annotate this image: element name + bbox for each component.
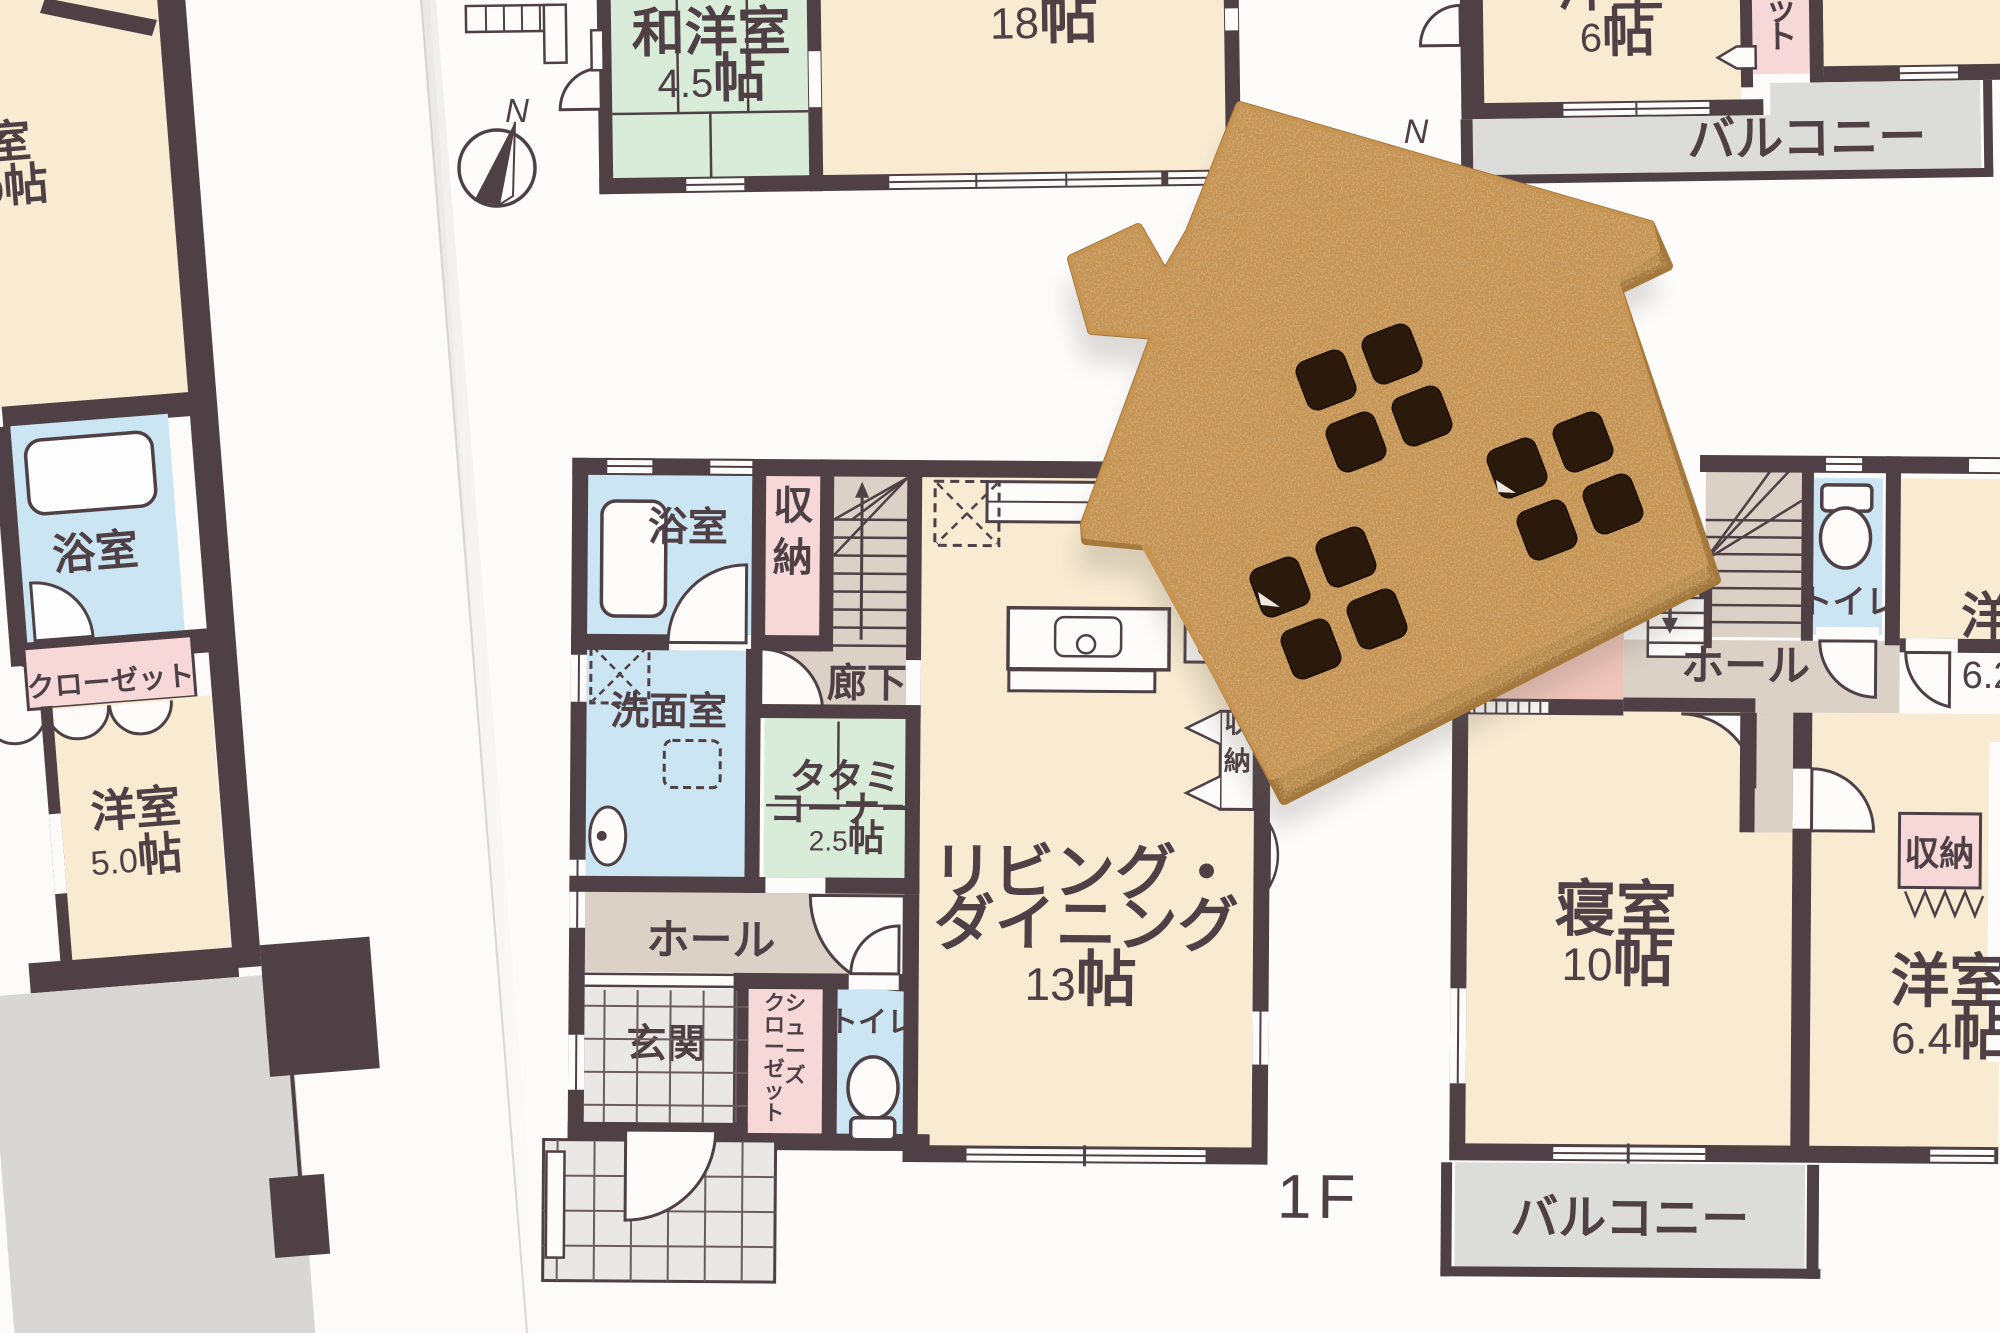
svg-text:ト: ト [1765, 19, 1798, 55]
svg-text:ズ: ズ [784, 1063, 805, 1087]
svg-text:和洋室: 和洋室 [631, 3, 791, 64]
svg-text:ッ: ッ [763, 1080, 784, 1103]
svg-text:シ: シ [785, 992, 806, 1015]
svg-text:ホール: ホール [646, 916, 775, 965]
svg-text:バルコニー: バルコニー [1510, 1192, 1749, 1247]
svg-text:ク: ク [764, 992, 785, 1015]
svg-text:トイレ: トイレ [829, 1007, 916, 1040]
svg-text:ゼ: ゼ [764, 1057, 785, 1081]
svg-text:5.0帖: 5.0帖 [0, 158, 50, 216]
svg-text:ロ: ロ [764, 1014, 785, 1037]
svg-text:廊下: 廊下 [827, 661, 907, 706]
svg-text:洗面室: 洗面室 [610, 690, 727, 734]
svg-text:ホール: ホール [1681, 642, 1810, 691]
svg-text:収納: 収納 [1904, 834, 1974, 873]
svg-text:トイレ: トイレ [1799, 583, 1898, 621]
svg-text:バルコニー: バルコニー [1687, 111, 1927, 167]
svg-text:ー: ー [785, 1040, 806, 1063]
svg-text:N: N [505, 92, 529, 129]
svg-text:収: 収 [773, 484, 813, 528]
svg-text:1F: 1F [1277, 1163, 1362, 1233]
svg-text:N: N [1404, 113, 1429, 151]
svg-text:洋室: 洋室 [1961, 588, 2000, 646]
svg-text:納: 納 [773, 536, 813, 580]
svg-text:浴室: 浴室 [648, 505, 728, 550]
svg-text:浴室: 浴室 [51, 526, 141, 581]
svg-text:コーナー: コーナー [769, 788, 917, 830]
svg-text:18帖: 18帖 [990, 0, 1099, 52]
svg-text:ー: ー [764, 1036, 785, 1059]
svg-text:ュ: ュ [785, 1016, 806, 1039]
svg-text:ト: ト [763, 1102, 784, 1125]
